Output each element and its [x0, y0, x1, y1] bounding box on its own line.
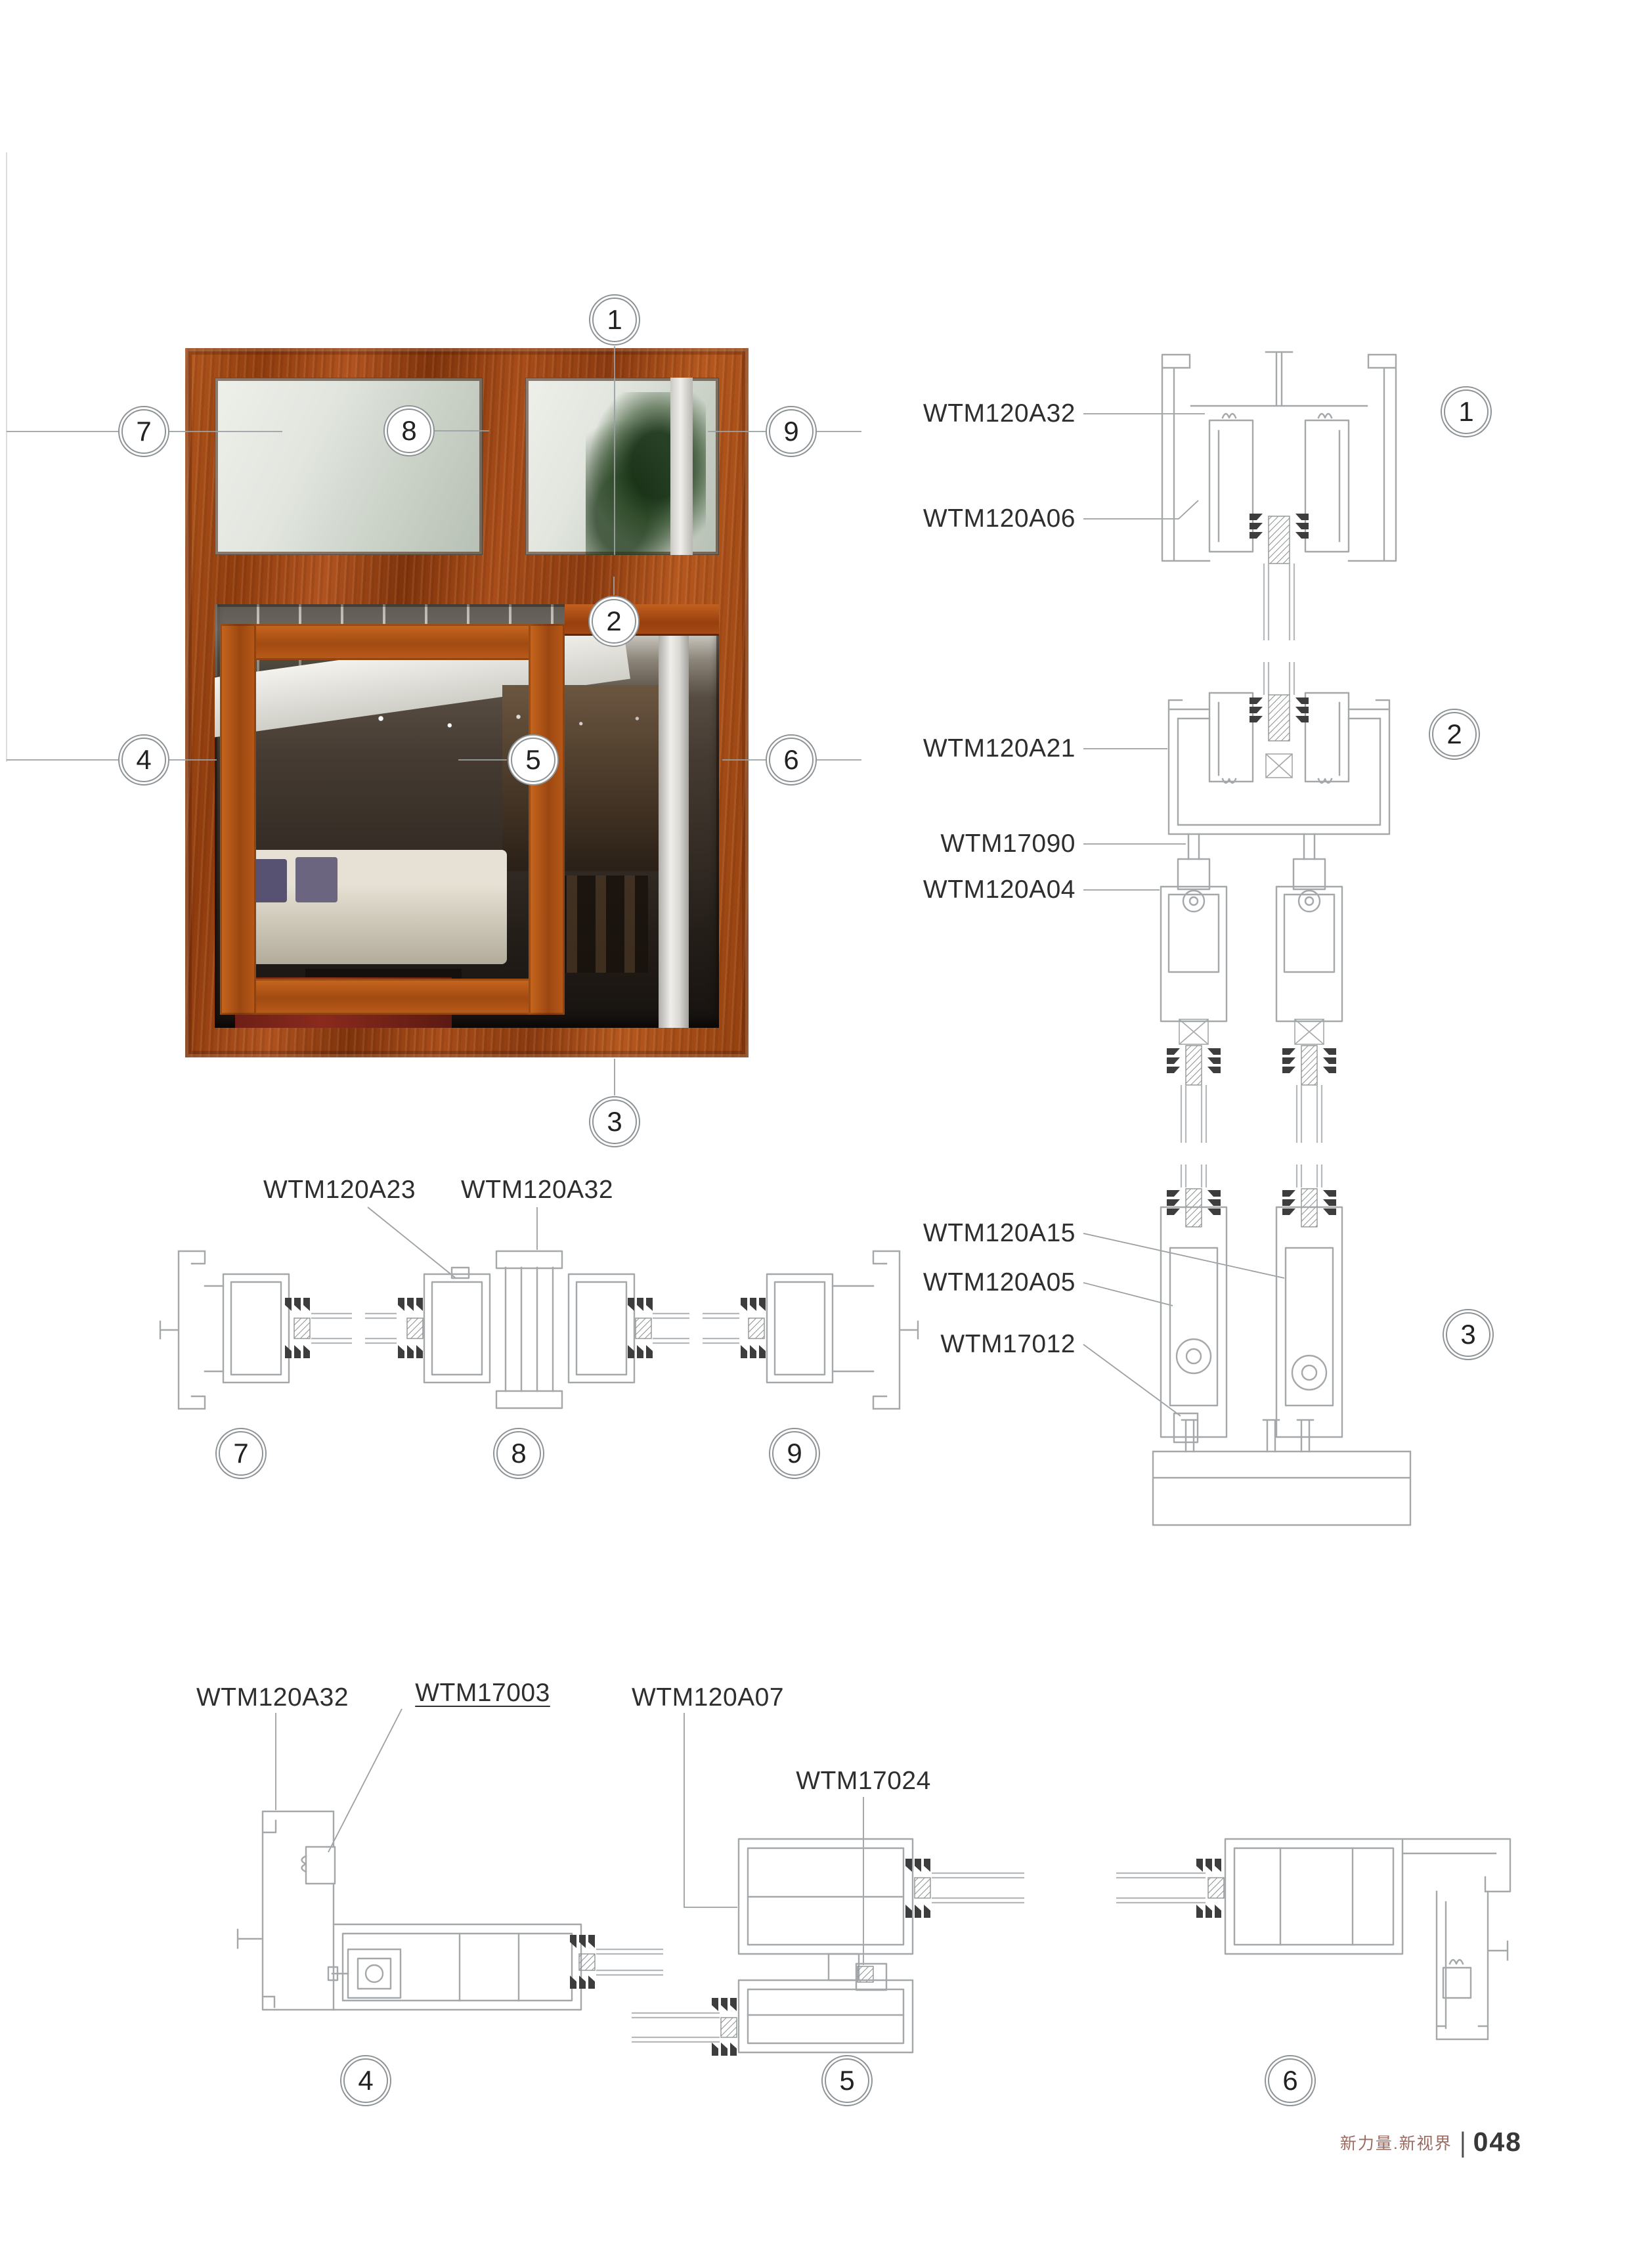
sash-rail-bottom: [220, 979, 565, 1015]
callout-7: 7: [118, 406, 169, 457]
part-label: WTM120A21: [886, 732, 1076, 765]
callout-ring: 7: [219, 1431, 263, 1476]
callout-ring: 3: [592, 1099, 637, 1144]
detail-1-drawing: [1162, 352, 1396, 695]
part-label: WTM120A04: [886, 874, 1076, 906]
transom-pane-left: [215, 378, 483, 555]
technical-line-art: [0, 0, 1652, 2258]
page-number: 048: [1473, 2127, 1522, 2158]
section-marker-2: 2: [1429, 709, 1480, 760]
callout-ring: 3: [1446, 1312, 1490, 1357]
callout-number: 5: [525, 746, 540, 774]
sash-stile-left: [220, 624, 256, 1015]
part-label: WTM17024: [796, 1765, 931, 1798]
callout-number: 1: [607, 306, 622, 334]
transom-pane-right: [525, 378, 719, 555]
detail-4-drawing: [238, 1811, 663, 2010]
page-footer: 新力量.新视界 | 048: [1340, 2127, 1522, 2158]
callout-ring: 2: [592, 599, 636, 644]
callout-ring: 5: [511, 738, 555, 782]
callout-ring: 1: [592, 298, 637, 342]
callout-ring: 2: [1432, 712, 1477, 757]
callout-number: 4: [358, 2067, 373, 2094]
part-label: WTM17003: [415, 1677, 550, 1710]
callout-number: 9: [787, 1440, 802, 1467]
callout-ring: 8: [496, 1431, 541, 1476]
sash-stile-right: [529, 624, 565, 1015]
callout-number: 3: [607, 1108, 622, 1136]
section-marker-1: 1: [1441, 386, 1492, 437]
interior-column: [659, 617, 689, 1028]
detail-3-drawing: [1153, 1189, 1410, 1525]
detail-2-drawing: [1161, 693, 1389, 1187]
callout-number: 2: [1446, 720, 1462, 748]
detail-5-drawing: [632, 1839, 1024, 2056]
footer-divider: |: [1460, 2129, 1464, 2156]
section-8-drawing: [398, 1251, 653, 1408]
callout-1: 1: [589, 294, 640, 345]
part-label: WTM17090: [886, 828, 1076, 860]
callout-ring: 7: [121, 409, 166, 454]
callout-number: 3: [1460, 1321, 1475, 1348]
callout-number: 6: [1282, 2067, 1297, 2094]
callout-ring: 9: [772, 1431, 817, 1476]
detail-6-drawing: [1116, 1839, 1510, 2039]
interior-column-top: [670, 378, 693, 555]
part-label: WTM17012: [886, 1328, 1076, 1361]
section-marker-4: 4: [340, 2055, 391, 2106]
section-marker-3: 3: [1443, 1309, 1494, 1360]
section-marker-5: 5: [821, 2055, 873, 2106]
sliding-sash-frame: [220, 624, 565, 1015]
callout-4: 4: [118, 734, 169, 786]
callout-9: 9: [766, 406, 817, 457]
part-label: WTM120A07: [632, 1681, 784, 1714]
callout-ring: 5: [825, 2058, 869, 2103]
part-label: WTM120A23: [263, 1174, 416, 1206]
catalog-page: WTM120A32 WTM120A06 WTM120A21 WTM17090 W…: [0, 0, 1652, 2258]
callout-number: 8: [511, 1440, 526, 1467]
callout-number: 5: [839, 2067, 854, 2094]
callout-ring: 1: [1444, 389, 1489, 434]
section-marker-9: 9: [769, 1428, 820, 1479]
part-label: WTM120A15: [886, 1217, 1076, 1250]
callout-8: 8: [383, 405, 435, 456]
callout-ring: 4: [343, 2058, 388, 2103]
callout-6: 6: [766, 734, 817, 786]
callout-ring: 9: [769, 409, 814, 454]
callout-number: 1: [1458, 398, 1473, 426]
part-label: WTM120A05: [886, 1266, 1076, 1299]
callout-number: 8: [401, 417, 416, 445]
glass-7-8: [311, 1314, 397, 1343]
window-photo: [185, 348, 749, 1057]
part-label: WTM120A06: [886, 502, 1076, 535]
callout-ring: 4: [121, 738, 166, 782]
callout-ring: 6: [1268, 2058, 1313, 2103]
section-marker-6: 6: [1265, 2055, 1316, 2106]
callout-number: 9: [783, 418, 798, 445]
callout-5: 5: [508, 734, 559, 786]
section-7-drawing: [160, 1251, 310, 1409]
callout-ring: 6: [769, 738, 814, 782]
callout-ring: 8: [387, 409, 431, 453]
callout-number: 6: [783, 746, 798, 774]
callout-number: 4: [136, 746, 151, 774]
section-marker-8: 8: [493, 1428, 544, 1479]
glass-8-9: [653, 1314, 739, 1343]
part-label: WTM120A32: [196, 1681, 349, 1714]
callout-2: 2: [588, 596, 640, 647]
sash-rail-top: [220, 624, 565, 660]
callout-3: 3: [589, 1096, 640, 1147]
callout-number: 2: [606, 608, 621, 635]
callout-number: 7: [136, 418, 151, 445]
part-label: WTM120A32: [461, 1174, 613, 1206]
brand-slogan: 新力量.新视界: [1340, 2131, 1452, 2154]
section-marker-7: 7: [215, 1428, 267, 1479]
part-label: WTM120A32: [886, 397, 1076, 430]
callout-number: 7: [233, 1440, 248, 1467]
